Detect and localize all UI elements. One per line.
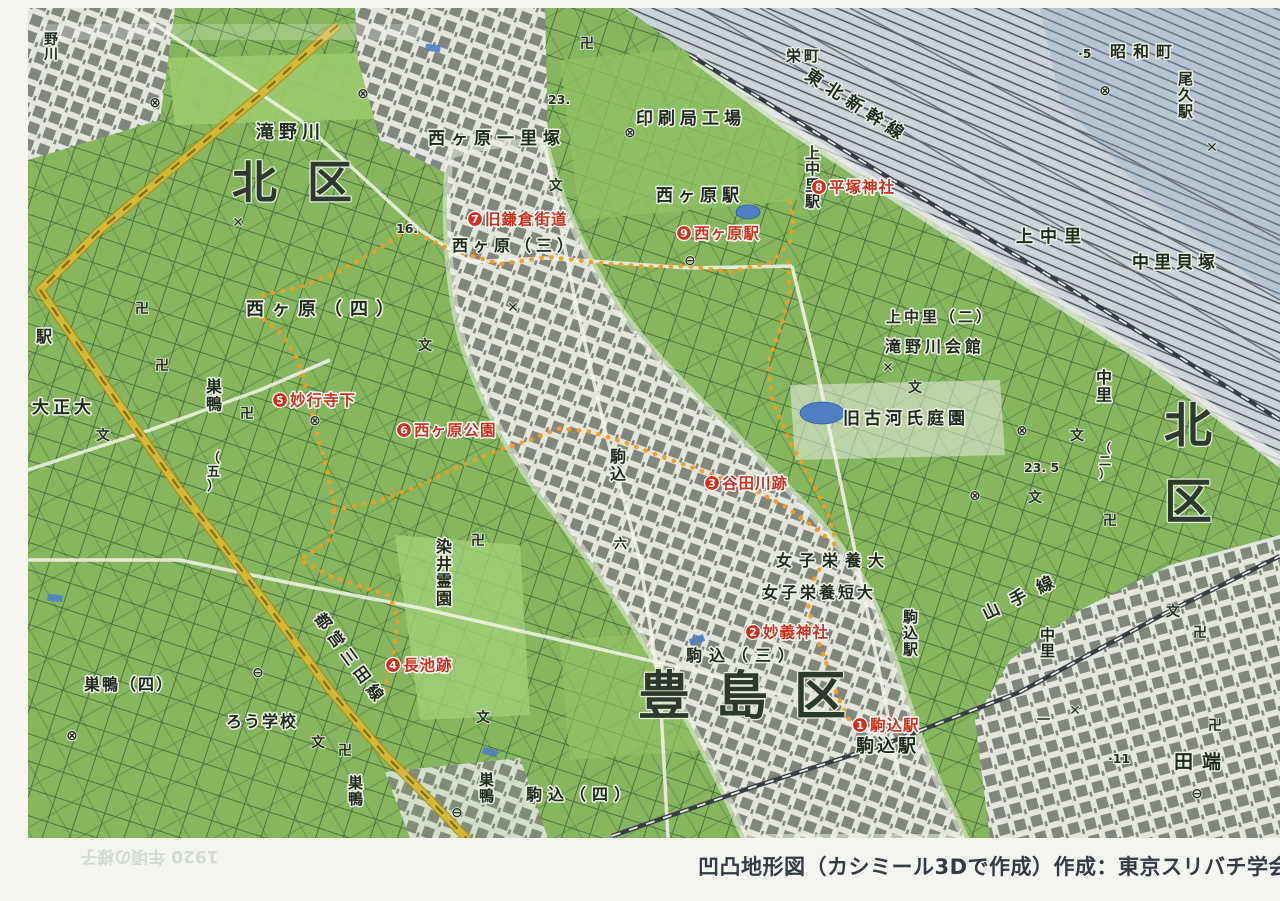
place-label: 女子栄養大 xyxy=(776,551,891,570)
place-label: 栄町 xyxy=(785,47,822,65)
place-label: 上中里 xyxy=(1016,226,1088,247)
route-stop-label: 平塚神社 xyxy=(829,178,895,197)
route-stop-label: 西ヶ原公園 xyxy=(414,422,497,440)
place-label: 田端 xyxy=(1174,750,1230,773)
circle-x-icon: ⊗ xyxy=(66,728,78,744)
manji-icon: 卍 xyxy=(1193,625,1207,641)
circle-x-icon: ⊗ xyxy=(624,125,636,141)
place-label: （二） xyxy=(1099,440,1111,481)
ward-label: 豊島区 xyxy=(638,667,872,727)
route-stop-number: 3 xyxy=(708,477,716,490)
school-icon: 文 xyxy=(1028,489,1043,506)
place-label: 駒込（三） xyxy=(686,646,801,665)
station-icon: ⊖ xyxy=(684,253,696,269)
place-label: 巣鴨（四） xyxy=(83,675,174,694)
school-icon: 文 xyxy=(311,734,326,751)
route-stop-label: 西ヶ原駅 xyxy=(694,225,760,243)
circle-x-icon: ⊗ xyxy=(309,413,321,429)
route-stop-number: 5 xyxy=(276,394,284,407)
place-label: 滝野川 xyxy=(256,121,325,143)
route-stop-number: 2 xyxy=(749,626,757,639)
route-stop-number: 6 xyxy=(400,424,408,437)
manji-icon: 卍 xyxy=(471,533,485,549)
spot-elevation: ·11 xyxy=(1108,751,1130,766)
manji-icon: 卍 xyxy=(240,406,254,422)
route-stop-label: 駒込駅 xyxy=(870,716,920,735)
manji-icon: 卍 xyxy=(580,36,594,52)
ward-label: 北区 xyxy=(232,156,382,209)
school-icon: 文 xyxy=(418,337,433,354)
circle-x-icon: ⊗ xyxy=(1099,83,1111,99)
cross-icon: ✕ xyxy=(507,300,519,316)
route-stop-number: 1 xyxy=(856,719,864,732)
station-icon: ⊖ xyxy=(252,665,264,681)
route-stop-number: 7 xyxy=(471,213,479,226)
place-label: 尾久駅 xyxy=(1177,70,1194,120)
map-area: 卍卍卍卍卍卍卍卍卍文文文文文文文文文⊗⊗⊗⊗⊗⊗⊗⊗⊖⊖⊖⊖✕✕✕✕✕ 北区北区… xyxy=(28,8,1280,842)
place-label: 西ヶ原一里塚 xyxy=(428,129,566,149)
route-stop-number: 4 xyxy=(389,659,397,672)
school-icon: 文 xyxy=(476,709,491,726)
cross-icon: ✕ xyxy=(882,360,894,376)
circle-x-icon: ⊗ xyxy=(149,95,161,111)
place-label: 六 xyxy=(614,536,627,552)
manji-icon: 卍 xyxy=(1103,513,1117,529)
place-label: 旧古河氏庭園 xyxy=(843,408,969,429)
place-label: 中里 xyxy=(1040,626,1055,660)
school-icon: 文 xyxy=(1166,603,1181,620)
route-stop-label: 妙行寺下 xyxy=(290,391,356,410)
place-label: 一 xyxy=(1037,713,1050,728)
cross-icon: ✕ xyxy=(1069,703,1081,719)
circle-x-icon: ⊗ xyxy=(1016,423,1028,439)
station-icon: ⊖ xyxy=(451,805,463,821)
route-stop-number: 9 xyxy=(680,227,688,240)
showthrough-text: 1920 年頃の様子 xyxy=(52,846,247,871)
spot-elevation: 23. 5 xyxy=(1024,460,1059,475)
place-label: 駒込駅 xyxy=(856,735,919,757)
place-label: ろう学校 xyxy=(226,712,298,731)
place-label: 昭和町 xyxy=(1110,42,1179,61)
school-icon: 文 xyxy=(549,177,564,194)
circle-x-icon: ⊗ xyxy=(969,488,981,504)
place-label: 西ヶ原駅 xyxy=(656,186,744,206)
scanned-map-page: 卍卍卍卍卍卍卍卍卍文文文文文文文文文⊗⊗⊗⊗⊗⊗⊗⊗⊖⊖⊖⊖✕✕✕✕✕ 北区北区… xyxy=(0,0,1280,901)
cross-icon: ✕ xyxy=(232,215,244,231)
place-label: 中里貝塚 xyxy=(1132,252,1220,273)
school-icon: 文 xyxy=(1070,427,1085,444)
pond xyxy=(736,205,760,219)
place-label: 滝野川会館 xyxy=(885,337,985,356)
map-svg: 卍卍卍卍卍卍卍卍卍文文文文文文文文文⊗⊗⊗⊗⊗⊗⊗⊗⊖⊖⊖⊖✕✕✕✕✕ 北区北区… xyxy=(0,0,1280,901)
pond xyxy=(800,402,844,424)
school-icon: 文 xyxy=(908,379,923,396)
spot-elevation: 16. xyxy=(396,221,418,236)
circle-x-icon: ⊗ xyxy=(357,86,369,102)
manji-icon: 卍 xyxy=(338,743,352,759)
place-label: 西ヶ原（三） xyxy=(452,236,578,255)
place-label: 上中里駅 xyxy=(804,144,821,211)
place-label: 駅 xyxy=(35,327,53,346)
place-label: 中里 xyxy=(1096,368,1112,404)
manji-icon: 卍 xyxy=(1208,718,1222,734)
blue-building xyxy=(47,594,63,602)
place-label: 巣鴨 xyxy=(478,771,495,805)
route-stop-number: 8 xyxy=(815,181,823,194)
place-label: 巣鴨 xyxy=(205,377,223,413)
school-icon: 文 xyxy=(96,427,111,444)
station-icon: ⊖ xyxy=(1191,786,1203,802)
manji-icon: 卍 xyxy=(135,301,149,317)
route-stop-label: 長池跡 xyxy=(403,656,453,675)
spot-elevation: ·5 xyxy=(1078,46,1091,61)
cross-icon: ✕ xyxy=(1206,140,1218,156)
place-label: 大正大 xyxy=(32,397,95,418)
scan-artifact xyxy=(40,24,420,40)
place-label: 西ヶ原（四） xyxy=(246,299,402,320)
place-label: 駒込（四） xyxy=(526,785,636,804)
route-stop-label: 妙義神社 xyxy=(763,623,829,642)
place-label: 野川 xyxy=(43,32,58,63)
manji-icon: 卍 xyxy=(155,358,169,374)
route-stop-label: 谷田川跡 xyxy=(722,474,788,493)
place-label: 駒込駅 xyxy=(902,608,919,658)
place-label: 巣鴨 xyxy=(347,774,364,808)
place-label: 印刷局工場 xyxy=(636,109,746,129)
place-label: 駒込 xyxy=(610,447,626,483)
place-label: （五） xyxy=(207,450,220,494)
route-stop-label: 旧鎌倉街道 xyxy=(485,210,568,229)
place-label: 女子栄養短大 xyxy=(762,583,876,602)
spot-elevation: 23. xyxy=(548,92,570,107)
place-label: 染井霊園 xyxy=(435,537,453,608)
place-label: 上中里（二） xyxy=(886,308,994,326)
map-caption: 凹凸地形図（カシミール3Dで作成）作成：東京スリバチ学会 xyxy=(698,851,1280,881)
